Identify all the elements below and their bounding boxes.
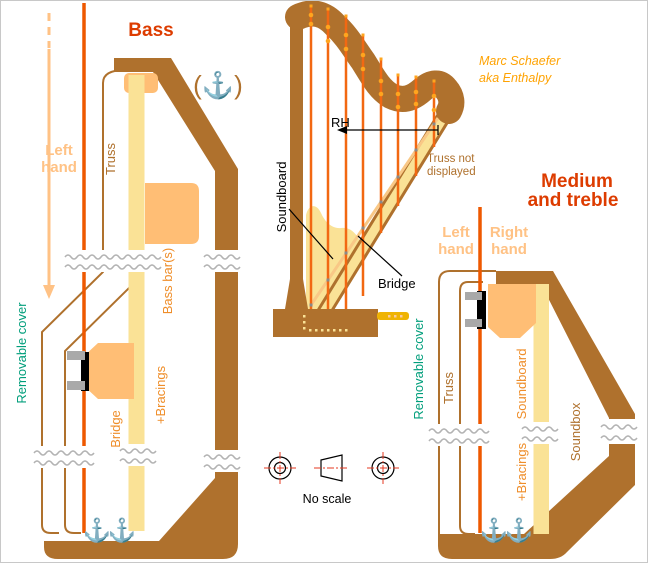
credit-line1: Marc Schaefer: [479, 54, 561, 68]
harp-pedal: [377, 312, 409, 320]
harp-pedestal: [285, 279, 308, 309]
medium-right-hand-label-2: hand: [491, 241, 527, 258]
projection-symbols: No scale: [264, 452, 399, 506]
bass-removable-cover-label: Removable cover: [14, 302, 29, 404]
no-scale-label: No scale: [303, 492, 352, 506]
medium-right-hand-label-1: Right: [490, 224, 528, 241]
truss-note-line1: Truss not: [427, 153, 475, 165]
harp-bridge-line: [311, 118, 438, 305]
medium-cover-outline-outer: [439, 271, 496, 540]
medium-bracings-label: +Bracings: [514, 442, 529, 501]
bass-bridge-pin-top: [67, 351, 85, 360]
medium-treble-cross-section: ⚓ ⚓ Medium and treble Left hand Right ha…: [411, 171, 645, 559]
harp-soundboard-label: Soundboard: [274, 162, 289, 233]
bass-bar-label: Bass bar(s): [160, 248, 175, 314]
medium-bridge-pin-bottom: [465, 319, 482, 327]
target-symbol-left: [264, 452, 296, 484]
truss-note-line2: displayed: [427, 166, 476, 178]
harp-neck: [298, 14, 451, 111]
harp-bridge-label: Bridge: [378, 276, 416, 291]
bass-cross-section: ⚓ ⚓ (⚓) Bass Left hand Truss Bass bar(s)…: [14, 3, 244, 559]
medium-soundbox-label: Soundbox: [568, 402, 583, 461]
medium-bridge-block: [488, 284, 536, 338]
credit-line2: aka Enthalpy: [479, 71, 552, 85]
medium-anchor-right: ⚓: [505, 517, 534, 544]
medium-left-hand-label-2: hand: [438, 241, 474, 258]
medium-left-hand-label-1: Left: [442, 224, 470, 241]
medium-title-line2: and treble: [528, 190, 619, 211]
medium-title-line1: Medium: [541, 171, 613, 192]
diagram-canvas: ⚓ ⚓ (⚓) Bass Left hand Truss Bass bar(s)…: [1, 1, 648, 563]
bass-title: Bass: [128, 20, 173, 41]
bass-bridge-block: [84, 343, 134, 399]
medium-truss-label: Truss: [441, 371, 456, 404]
arrow-down-head: [43, 285, 55, 299]
bass-anchor-parenthesized: (⚓): [193, 70, 243, 100]
target-symbol-right: [367, 452, 399, 484]
projection-cone-symbol: [314, 455, 349, 481]
rh-label: RH: [331, 115, 350, 130]
bass-bridge-pin-bottom: [67, 381, 85, 390]
harp-design-diagram: ⚓ ⚓ (⚓) Bass Left hand Truss Bass bar(s)…: [0, 0, 648, 563]
bass-truss-label: Truss: [103, 142, 118, 175]
medium-removable-cover-label: Removable cover: [411, 318, 426, 420]
harp-base: [273, 309, 378, 337]
bass-bracings-label: +Bracings: [153, 365, 168, 424]
bass-bar-block: [145, 183, 199, 244]
bass-anchor-right: ⚓: [108, 517, 137, 544]
rh-range-arrow: [337, 125, 438, 135]
bass-bridge-label: Bridge: [108, 410, 123, 448]
bass-left-hand-label-2: hand: [41, 159, 77, 176]
bass-left-hand-label-1: Left: [45, 142, 73, 159]
harp-pillar: [290, 9, 303, 281]
medium-soundboard-label: Soundboard: [514, 349, 529, 420]
medium-bridge-pin-top: [465, 292, 482, 300]
